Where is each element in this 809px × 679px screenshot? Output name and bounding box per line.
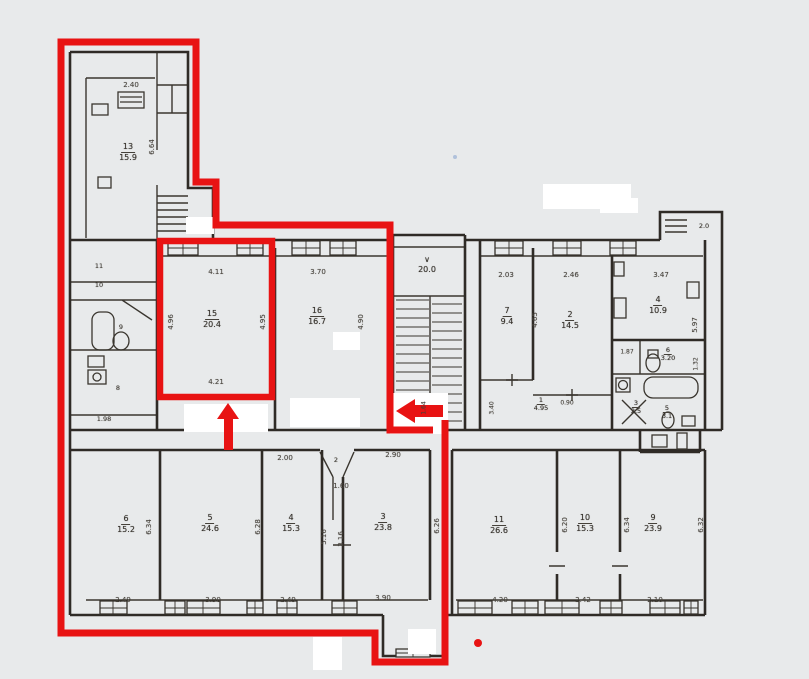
dim-label: 2.90	[385, 451, 401, 459]
dim-label-vertical: 4.90	[357, 314, 365, 330]
room-area: 16.7	[308, 317, 326, 327]
room-label-3-lower: 323.8	[374, 512, 392, 532]
room-area: 15.3	[282, 524, 300, 534]
room-number: 2	[565, 310, 574, 321]
dim-label: 3.70	[310, 268, 326, 276]
cell-label-8: 8	[116, 384, 120, 392]
dim-label-vertical: 6.64	[148, 139, 156, 155]
hall-2-label: 2	[334, 456, 338, 464]
dim-label-vertical: 1.64	[421, 401, 428, 414]
stair-area: 20.0	[418, 265, 436, 275]
dim-label: 2.10	[647, 596, 663, 604]
cell-label-10: 10	[95, 281, 103, 289]
room-area: 3.20	[661, 355, 675, 362]
room-label-15-highlighted: 1520.4	[203, 309, 221, 329]
dim-label-vertical: 6.26	[433, 518, 441, 534]
dim-label: 2.00	[277, 454, 293, 462]
room-label-11: 1126.6	[490, 515, 508, 535]
room-area: 14.5	[561, 321, 579, 331]
room-label-6-lower: 615.2	[117, 514, 135, 534]
room-number: 7	[502, 306, 511, 317]
dim-label: 4.20	[492, 596, 508, 604]
room-number: 4	[286, 513, 295, 524]
dim-label-vertical: 5.97	[691, 317, 699, 333]
dim-label: 2.42	[575, 596, 591, 604]
room-label-2: 214.5	[561, 310, 579, 330]
dim-label-vertical: 6.28	[254, 519, 262, 535]
room-area: 15.2	[117, 525, 135, 535]
room-area: 23.8	[374, 523, 392, 533]
dim-label: 3.47	[653, 271, 669, 279]
room-number: 15	[205, 309, 219, 320]
cell-label-9: 9	[119, 323, 123, 331]
room-label-16: 1616.7	[308, 306, 326, 326]
room-number: 16	[310, 306, 324, 317]
room-label-wc-5: 53.1	[662, 405, 672, 421]
room-number: 10	[578, 513, 592, 524]
cell-label-11: 11	[95, 262, 103, 270]
stair-mark: ∨	[424, 255, 430, 265]
room-area: 4.95	[534, 405, 548, 412]
stairwell-label: ∨20.0	[418, 255, 436, 274]
plan-labels: 1315.9 1520.4 1616.7 79.4 214.5 410.9 63…	[0, 0, 809, 679]
dim-label: 2.03	[498, 271, 514, 279]
dim-label: 3.90	[205, 596, 221, 604]
cell-label-closet: 1.98	[97, 415, 111, 423]
dim-label-vertical: 6.34	[623, 517, 631, 533]
dim-label-vertical: 3.40	[489, 401, 496, 414]
room-area: 10.9	[649, 306, 667, 316]
dim-label-vertical: 6.32	[697, 517, 705, 533]
room-number: 4	[653, 295, 662, 306]
room-area: 26.6	[490, 526, 508, 536]
porch-dim-label: 2.0	[699, 222, 709, 230]
room-number: 5	[205, 513, 214, 524]
room-area: 15.3	[576, 524, 594, 534]
room-number: 6	[121, 514, 130, 525]
dim-label: 1.60	[333, 482, 349, 490]
dim-label-vertical: 3.16	[337, 531, 345, 547]
room-label-4-lower: 415.3	[282, 513, 300, 533]
room-area: 20.4	[203, 320, 221, 330]
floor-plan-page: 1315.9 1520.4 1616.7 79.4 214.5 410.9 63…	[0, 0, 809, 679]
dim-label: 2.49	[280, 596, 296, 604]
room-area: 3.1	[662, 413, 672, 420]
room-area: 24.6	[201, 524, 219, 534]
room-number: 9	[648, 513, 657, 524]
room-label-5-lower: 524.6	[201, 513, 219, 533]
dim-label-vertical: 6.34	[145, 519, 153, 535]
dim-label: 2.49	[115, 596, 131, 604]
room-label-13: 1315.9	[119, 142, 137, 162]
room-number: 3	[378, 512, 387, 523]
dim-label-vertical: 4.96	[167, 314, 175, 330]
dim-label: 4.21	[208, 378, 224, 386]
dim-label: 2.40	[123, 81, 139, 89]
dim-label-vertical: 4.65	[531, 312, 539, 328]
room-area: 23.9	[644, 524, 662, 534]
room-label-10: 1015.3	[576, 513, 594, 533]
dim-label: 0.90	[560, 400, 573, 407]
dim-label: 3.90	[375, 594, 391, 602]
room-area: 15.9	[119, 153, 137, 163]
room-area: 9.4	[501, 317, 514, 327]
dim-label: 4.11	[208, 268, 224, 276]
room-label-7: 79.4	[501, 306, 514, 326]
room-label-wc-3: 32.5	[631, 400, 641, 416]
room-area: 2.5	[631, 408, 641, 415]
room-label-4-upper: 410.9	[649, 295, 667, 315]
room-label-9: 923.9	[644, 513, 662, 533]
dim-label: 2.46	[563, 271, 579, 279]
dim-label-vertical: 1.32	[693, 357, 700, 370]
dim-label-vertical: 5.16	[320, 529, 328, 545]
room-number: 13	[121, 142, 135, 153]
dim-label: 1.87	[620, 349, 633, 356]
dim-label-vertical: 4.95	[259, 314, 267, 330]
room-label-hall-1: 14.95	[534, 397, 548, 413]
room-label-wc-6: 63.20	[661, 347, 675, 363]
room-number: 11	[492, 515, 506, 526]
dim-label-vertical: 6.20	[561, 517, 569, 533]
